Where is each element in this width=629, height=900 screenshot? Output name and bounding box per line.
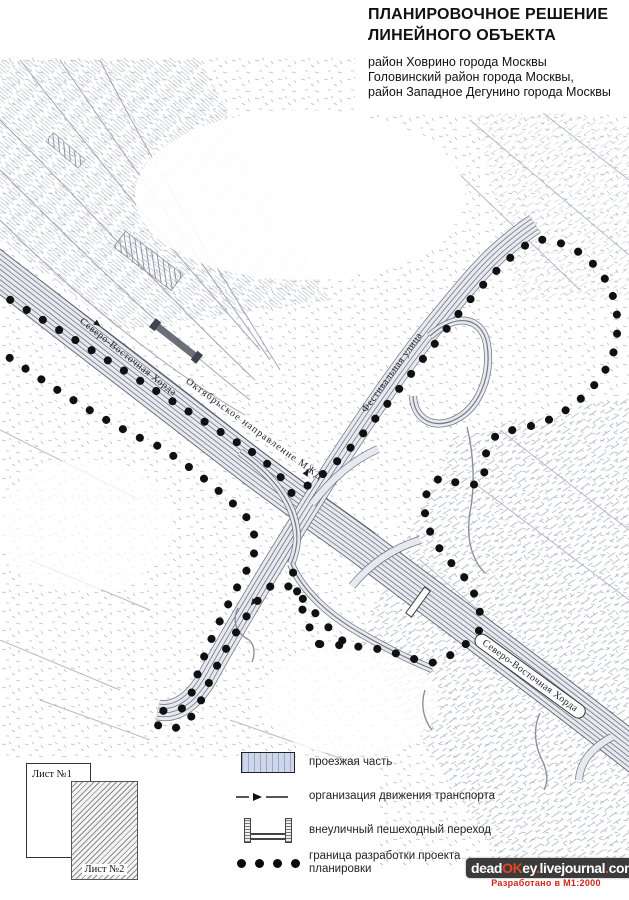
sheet2-outline: Лист №2	[71, 781, 138, 880]
legend-label: граница разработки проекта планировки	[309, 850, 477, 876]
watermark-segment: dead	[471, 860, 502, 876]
watermark-segment: com	[609, 860, 629, 876]
sheet1-label: Лист №1	[32, 769, 72, 780]
title-block: ПЛАНИРОВОЧНОЕ РЕШЕНИЕ ЛИНЕЙНОГО ОБЪЕКТА …	[368, 4, 624, 100]
plan-sheet: Северо-Восточная Хорда Октябрьское напра…	[0, 0, 629, 900]
legend-item-boundary: граница разработки проекта планировки	[236, 850, 477, 876]
sheet2-label: Лист №2	[82, 864, 128, 875]
legend-label: организация движения транспорта	[309, 790, 495, 803]
legend-label: внеуличный пешеходный переход	[309, 824, 491, 837]
watermark-text: deadOKey.livejournal.com	[466, 858, 629, 878]
district-item: район Западное Дегунино города Москвы	[368, 85, 624, 100]
legend-item-roadway: проезжая часть	[236, 752, 392, 773]
watermark: deadOKey.livejournal.com Разработано в М…	[466, 858, 626, 888]
legend-item-traffic: организация движения транспорта	[236, 790, 495, 803]
watermark-segment: ey	[522, 860, 536, 876]
page-title: ПЛАНИРОВОЧНОЕ РЕШЕНИЕ ЛИНЕЙНОГО ОБЪЕКТА	[368, 4, 624, 46]
sheet-index-inset: Лист №1 Лист №2	[14, 750, 164, 892]
roadway-swatch-icon	[241, 752, 295, 773]
boundary-dots-icon	[237, 859, 300, 868]
title-line1: ПЛАНИРОВОЧНОЕ РЕШЕНИЕ	[368, 6, 608, 23]
watermark-segment: OK	[502, 860, 522, 876]
district-list: район Ховрино города Москвы Головинский …	[368, 55, 624, 100]
legend-label: проезжая часть	[309, 756, 392, 769]
pedestrian-bridge-icon	[244, 818, 292, 843]
watermark-segment: livejournal	[540, 860, 606, 876]
legend-item-bridge: внеуличный пешеходный переход	[236, 818, 491, 843]
district-item: район Ховрино города Москвы	[368, 55, 624, 70]
title-line2: ЛИНЕЙНОГО ОБЪЕКТА	[368, 27, 556, 44]
district-item: Головинский район города Москвы,	[368, 70, 624, 85]
watermark-note: Разработано в М1:2000	[466, 878, 626, 888]
traffic-arrow-icon	[236, 793, 300, 801]
